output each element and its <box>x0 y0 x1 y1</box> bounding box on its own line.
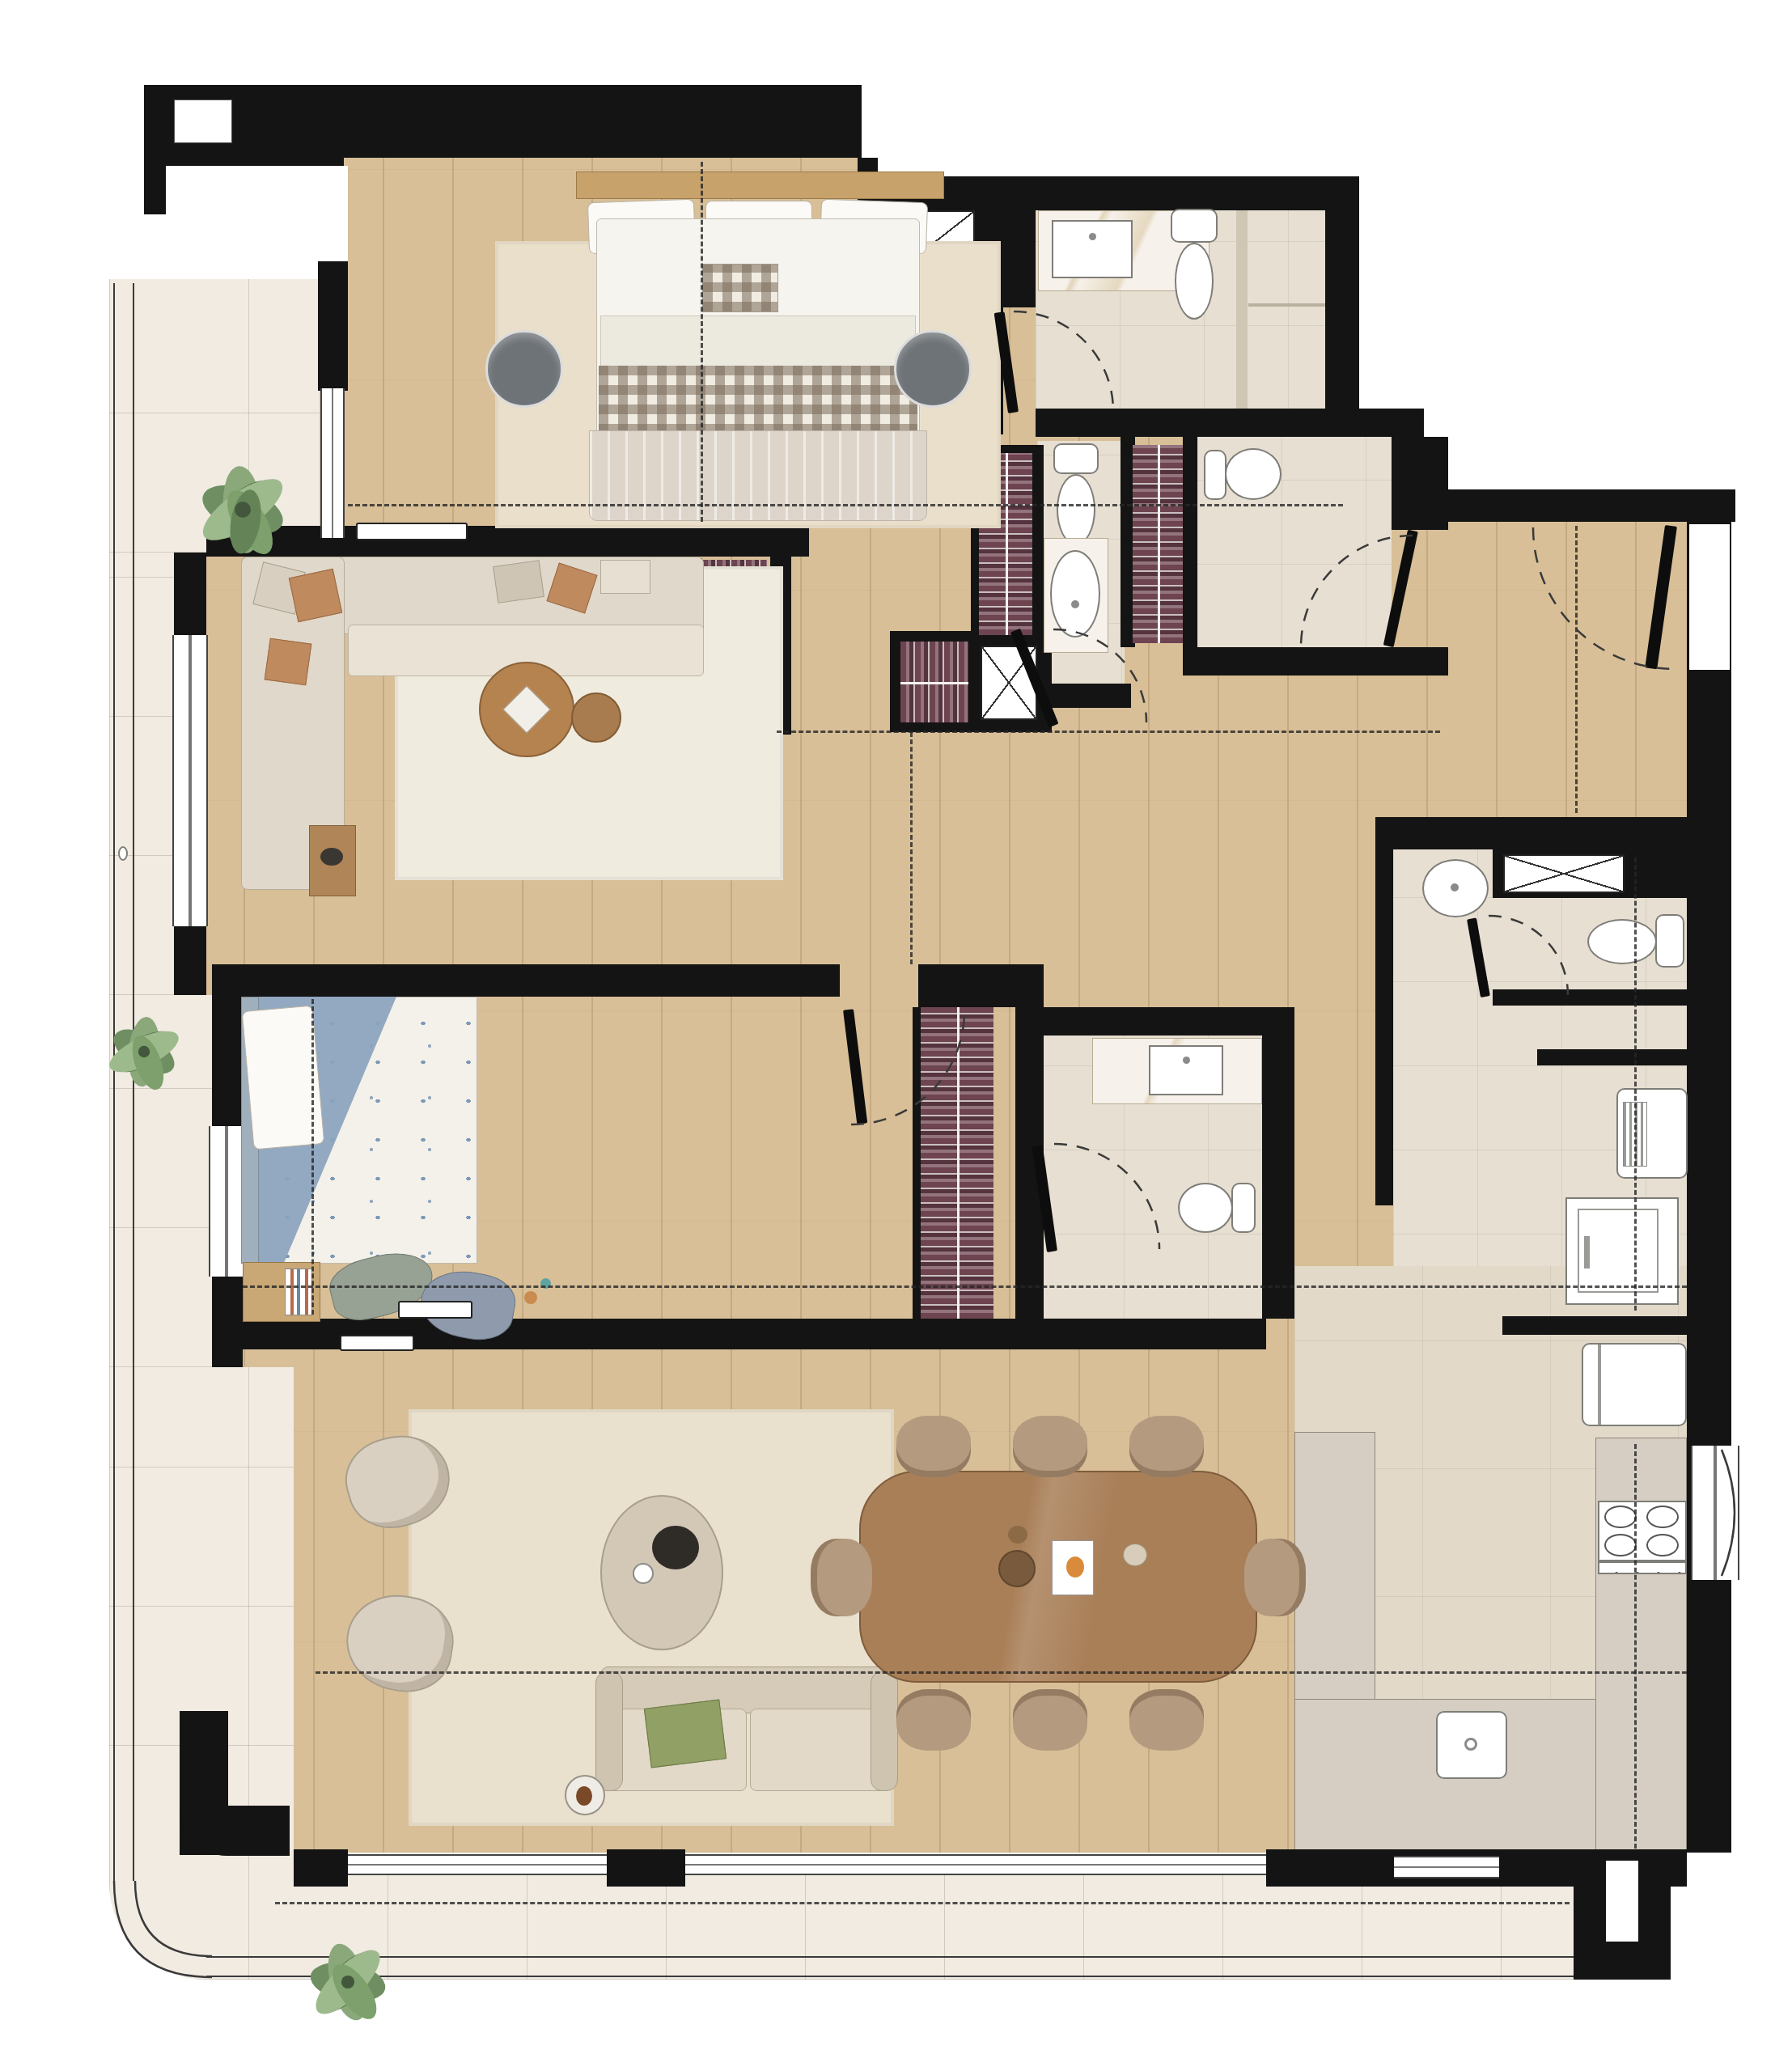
dashed-line <box>777 731 1440 733</box>
washer-door <box>1578 1209 1659 1293</box>
outside <box>1731 0 1792 2071</box>
window <box>685 1854 1266 1875</box>
toilet-bowl <box>1225 448 1282 500</box>
toilet-bowl <box>1587 919 1657 964</box>
toilet-tank <box>1231 1183 1256 1233</box>
faucet <box>1183 1057 1190 1064</box>
burner <box>1604 1506 1637 1528</box>
oval-basin <box>1050 550 1100 637</box>
toilet-tank <box>1053 443 1099 474</box>
wall <box>212 964 840 997</box>
decor <box>576 1786 592 1806</box>
headboard <box>576 172 944 199</box>
dining-chair <box>1013 1689 1087 1751</box>
wall <box>913 1007 921 1319</box>
shaft <box>1503 854 1625 893</box>
square-basin <box>1052 220 1133 278</box>
wall <box>918 964 1044 1007</box>
dashed-line <box>243 1285 1687 1288</box>
wall <box>1183 437 1197 647</box>
sofa-pillow <box>289 569 342 622</box>
sofa-pillow <box>600 560 650 594</box>
dashed-line <box>348 504 1343 506</box>
dashed-line <box>1634 858 1637 1311</box>
dining-chair <box>896 1689 971 1751</box>
oval-coffee-table <box>600 1495 723 1650</box>
washer-handle <box>1584 1236 1590 1268</box>
dashed-line <box>1575 526 1578 813</box>
outside <box>0 85 109 2071</box>
tv-console <box>356 523 468 540</box>
dining-chair <box>1013 1416 1087 1477</box>
cooktop-knobs <box>1598 1561 1687 1574</box>
dining-chair <box>1244 1539 1306 1616</box>
burner <box>1604 1534 1637 1556</box>
wall <box>1375 817 1687 849</box>
floor-plan <box>0 0 1792 2071</box>
burner <box>1646 1506 1679 1528</box>
square-basin <box>1149 1045 1223 1095</box>
sofa-pillow <box>265 638 312 686</box>
nightstand <box>485 330 563 408</box>
wall <box>294 1849 348 1887</box>
balcony-floor <box>109 279 320 553</box>
window <box>209 1126 244 1277</box>
plaid-pillow <box>702 264 778 312</box>
toilet-bowl <box>1175 243 1214 320</box>
dashed-line <box>275 1902 1570 1904</box>
toilet-tank <box>1204 450 1226 500</box>
dashed-line <box>910 732 913 964</box>
balcony-door-window <box>320 388 345 538</box>
wardrobe <box>1133 445 1183 643</box>
plaid-throw <box>599 366 917 434</box>
dining-chair <box>1129 1416 1204 1477</box>
toilet-tank <box>1171 209 1218 243</box>
shower-divider <box>1248 303 1325 307</box>
bed-quilt <box>600 316 916 369</box>
entry-door-opening <box>1689 524 1730 670</box>
burner <box>1646 1534 1679 1556</box>
loveseat-arm <box>871 1671 898 1791</box>
tv-console <box>398 1301 472 1319</box>
dining-chair <box>811 1539 872 1616</box>
dining-chair <box>1129 1689 1204 1751</box>
wall <box>1183 647 1424 676</box>
partition <box>1236 210 1248 409</box>
wall <box>1502 1316 1687 1335</box>
wall <box>1493 989 1687 1006</box>
faucet <box>1089 233 1096 240</box>
green-pillow <box>644 1700 727 1768</box>
dashed-line <box>311 999 314 1315</box>
wall <box>1023 1007 1294 1035</box>
wall-opening <box>174 100 232 143</box>
loveseat-arm <box>595 1671 623 1791</box>
toilet-bowl <box>1057 474 1095 545</box>
wardrobe <box>900 642 968 722</box>
table-plate <box>998 1550 1036 1587</box>
window <box>1394 1856 1499 1878</box>
kids-wardrobe <box>921 1007 993 1319</box>
wall <box>307 85 862 158</box>
outside <box>0 1980 1792 2071</box>
wall <box>1537 1049 1687 1065</box>
table-plate <box>1008 1526 1027 1544</box>
drain <box>1464 1738 1477 1751</box>
wall <box>144 166 166 214</box>
sofa-pillow <box>493 560 544 604</box>
dining-chair <box>896 1416 971 1477</box>
drain <box>1071 600 1079 608</box>
wall-slot <box>1606 1861 1638 1942</box>
balcony-railing <box>206 1956 1622 1977</box>
wall <box>1023 1035 1040 1133</box>
table-decor <box>1123 1544 1147 1566</box>
outside <box>109 0 344 85</box>
fridge-doors <box>1598 1345 1601 1425</box>
tv-console <box>340 1335 414 1351</box>
toilet-tank <box>1655 914 1684 968</box>
wall <box>1262 1007 1294 1319</box>
toy-ball <box>524 1291 537 1304</box>
tray <box>652 1526 699 1569</box>
wall <box>607 1849 685 1887</box>
wall <box>1036 409 1424 437</box>
bed-ruffle <box>589 430 927 521</box>
dashed-line <box>1634 1444 1637 1849</box>
railing-knob <box>118 846 128 861</box>
dashed-line <box>701 162 703 522</box>
wall <box>206 526 809 557</box>
wall <box>1003 210 1036 307</box>
bowl <box>320 848 343 866</box>
window <box>348 1854 607 1875</box>
loveseat-seat <box>750 1709 889 1791</box>
kitchen-counter-right <box>1595 1438 1687 1853</box>
kitchen-side-window <box>1691 1446 1739 1580</box>
dashed-line <box>316 1671 1687 1674</box>
nightstand <box>894 330 972 408</box>
balcony-railing <box>113 283 134 1881</box>
side-round-table <box>571 692 621 743</box>
table-decor <box>1066 1556 1084 1578</box>
drain <box>1451 883 1459 892</box>
window <box>172 635 208 926</box>
outside <box>858 0 1359 176</box>
books <box>285 1268 312 1315</box>
toilet-bowl <box>1178 1183 1233 1233</box>
wall <box>1687 489 1731 1853</box>
wall <box>1325 176 1359 437</box>
wall <box>1375 817 1393 1205</box>
wall <box>318 261 348 391</box>
wall <box>1392 437 1448 530</box>
cup <box>633 1563 654 1584</box>
